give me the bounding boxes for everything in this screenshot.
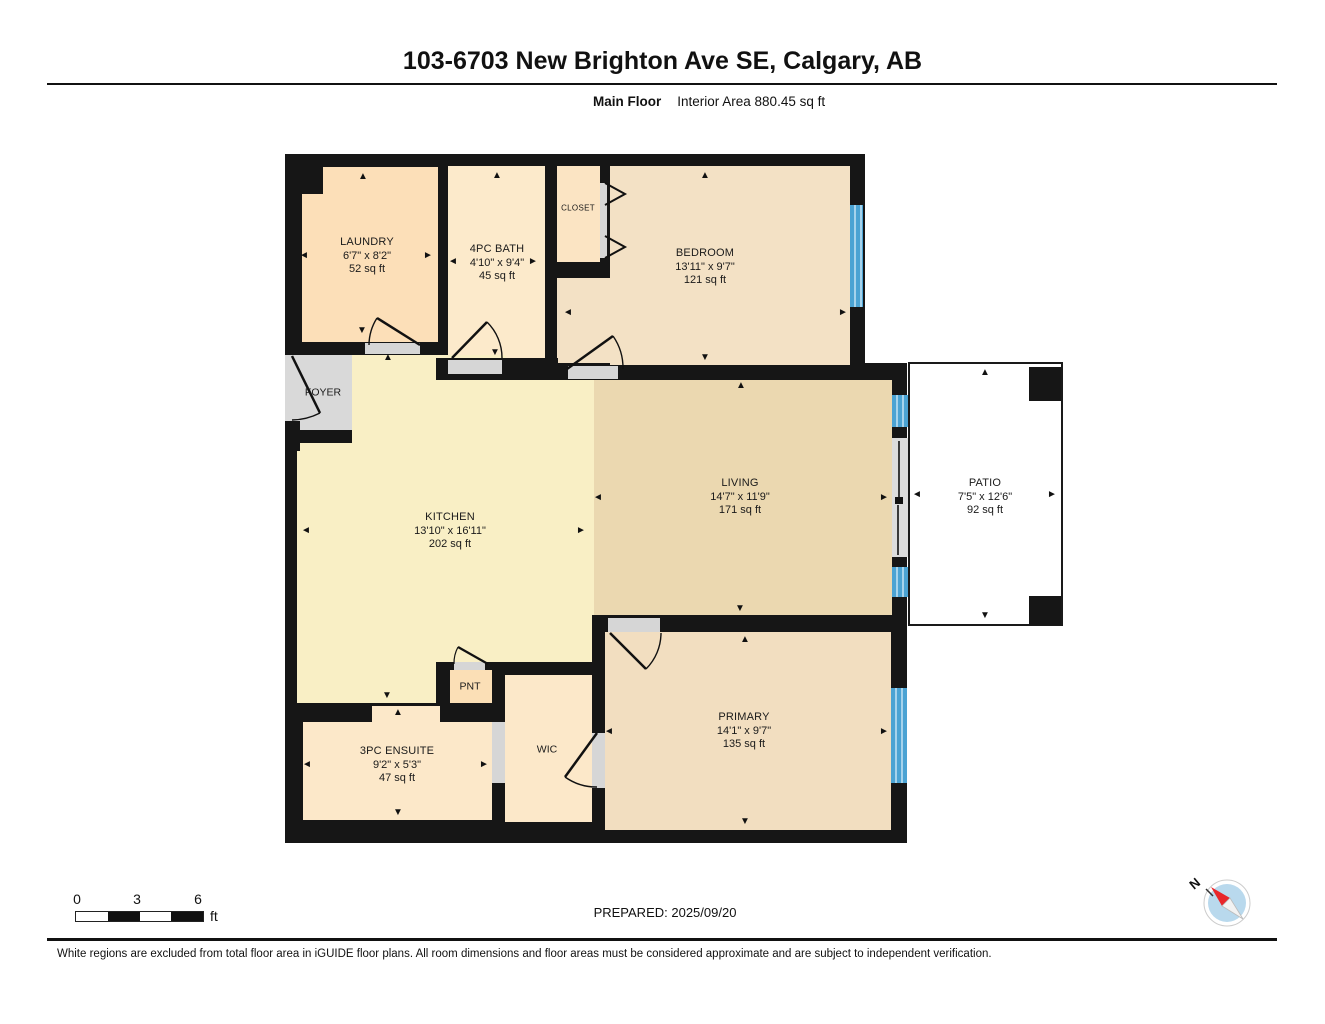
dimension-arrow-up: ▲	[980, 368, 990, 378]
dimension-arrow-up: ▲	[740, 635, 750, 645]
door-swing-overlay	[0, 0, 1325, 1024]
dimension-arrow-left: ◄	[593, 493, 603, 503]
primary-label: PRIMARY14'1" x 9'7"135 sq ft	[717, 711, 771, 752]
dimension-arrow-down: ▼	[357, 326, 367, 336]
bath-label: 4PC BATH4'10" x 9'4"45 sq ft	[470, 243, 525, 284]
dimension-arrow-right: ►	[479, 760, 489, 770]
dimension-arrow-down: ▼	[393, 808, 403, 818]
dimension-arrow-left: ◄	[299, 251, 309, 261]
dimension-arrow-right: ►	[879, 727, 889, 737]
wic-label: WIC	[537, 743, 557, 757]
dimension-arrow-right: ►	[838, 308, 848, 318]
prepared-date: PREPARED: 2025/09/20	[0, 905, 1325, 920]
dimension-arrow-down: ▼	[490, 348, 500, 358]
disclaimer-text: White regions are excluded from total fl…	[57, 948, 992, 960]
bedroom-label: BEDROOM13'11" x 9'7"121 sq ft	[675, 247, 735, 288]
dimension-arrow-right: ►	[1047, 490, 1057, 500]
dimension-arrow-up: ▲	[358, 172, 368, 182]
dimension-arrow-up: ▲	[383, 353, 393, 363]
dimension-arrow-left: ◄	[448, 257, 458, 267]
dimension-arrow-down: ▼	[382, 691, 392, 701]
dimension-arrow-left: ◄	[604, 727, 614, 737]
dimension-arrow-up: ▲	[736, 381, 746, 391]
dimension-arrow-left: ◄	[301, 526, 311, 536]
ensuite-label: 3PC ENSUITE9'2" x 5'3"47 sq ft	[360, 745, 434, 786]
dimension-arrow-right: ►	[879, 493, 889, 503]
pantry-label: PNT	[460, 680, 481, 694]
closet-label: CLOSET	[561, 201, 595, 215]
dimension-arrow-down: ▼	[740, 817, 750, 827]
floor-plan-page: { "header": { "title": "103-6703 New Bri…	[0, 0, 1325, 1024]
living-label: LIVING14'7" x 11'9"171 sq ft	[710, 477, 770, 518]
footer-divider	[47, 938, 1277, 941]
dimension-arrow-left: ◄	[302, 760, 312, 770]
compass-icon	[1197, 873, 1257, 933]
dimension-arrow-right: ►	[528, 257, 538, 267]
dimension-arrow-right: ►	[576, 526, 586, 536]
kitchen-label: KITCHEN13'10" x 16'11"202 sq ft	[414, 511, 486, 552]
dimension-arrow-up: ▲	[393, 708, 403, 718]
dimension-arrow-down: ▼	[700, 353, 710, 363]
foyer-label: FOYER	[305, 386, 341, 400]
patio-label: PATIO7'5" x 12'6"92 sq ft	[958, 477, 1012, 518]
dimension-arrow-up: ▲	[700, 171, 710, 181]
dimension-arrow-up: ▲	[492, 171, 502, 181]
dimension-arrow-right: ►	[423, 251, 433, 261]
dimension-arrow-down: ▼	[980, 611, 990, 621]
dimension-arrow-left: ◄	[563, 308, 573, 318]
laundry-label: LAUNDRY6'7" x 8'2"52 sq ft	[340, 236, 394, 277]
dimension-arrow-down: ▼	[735, 604, 745, 614]
dimension-arrow-left: ◄	[912, 490, 922, 500]
